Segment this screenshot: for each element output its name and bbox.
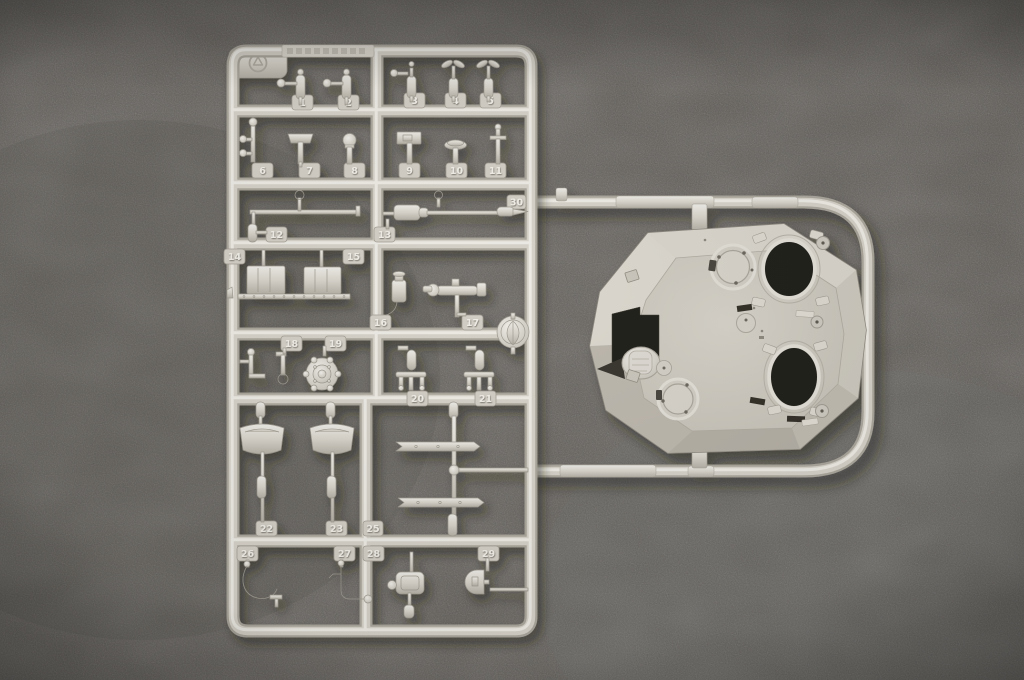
vignette: [0, 0, 1024, 680]
photo-of-model-kit-sprue: 1 2 3 4 5 6 7 8 9 10 11 12 13 14 15 16 1…: [0, 0, 1024, 680]
